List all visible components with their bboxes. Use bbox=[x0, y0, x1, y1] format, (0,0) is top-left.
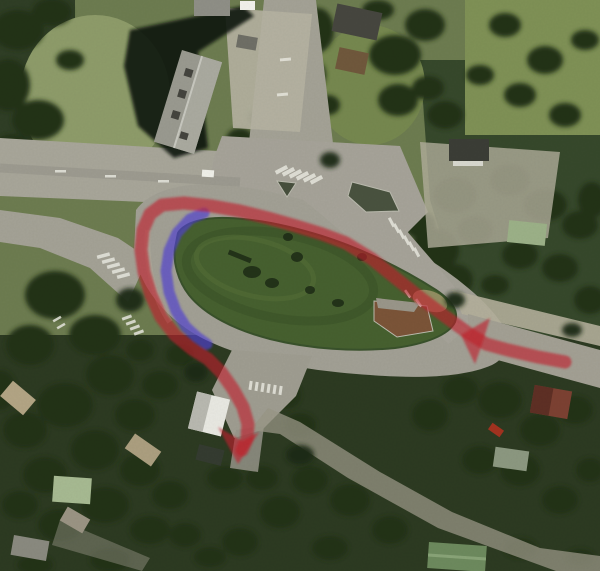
photo-grain bbox=[0, 0, 600, 571]
aerial-photo bbox=[0, 0, 600, 571]
aerial-screenshot bbox=[0, 0, 600, 571]
